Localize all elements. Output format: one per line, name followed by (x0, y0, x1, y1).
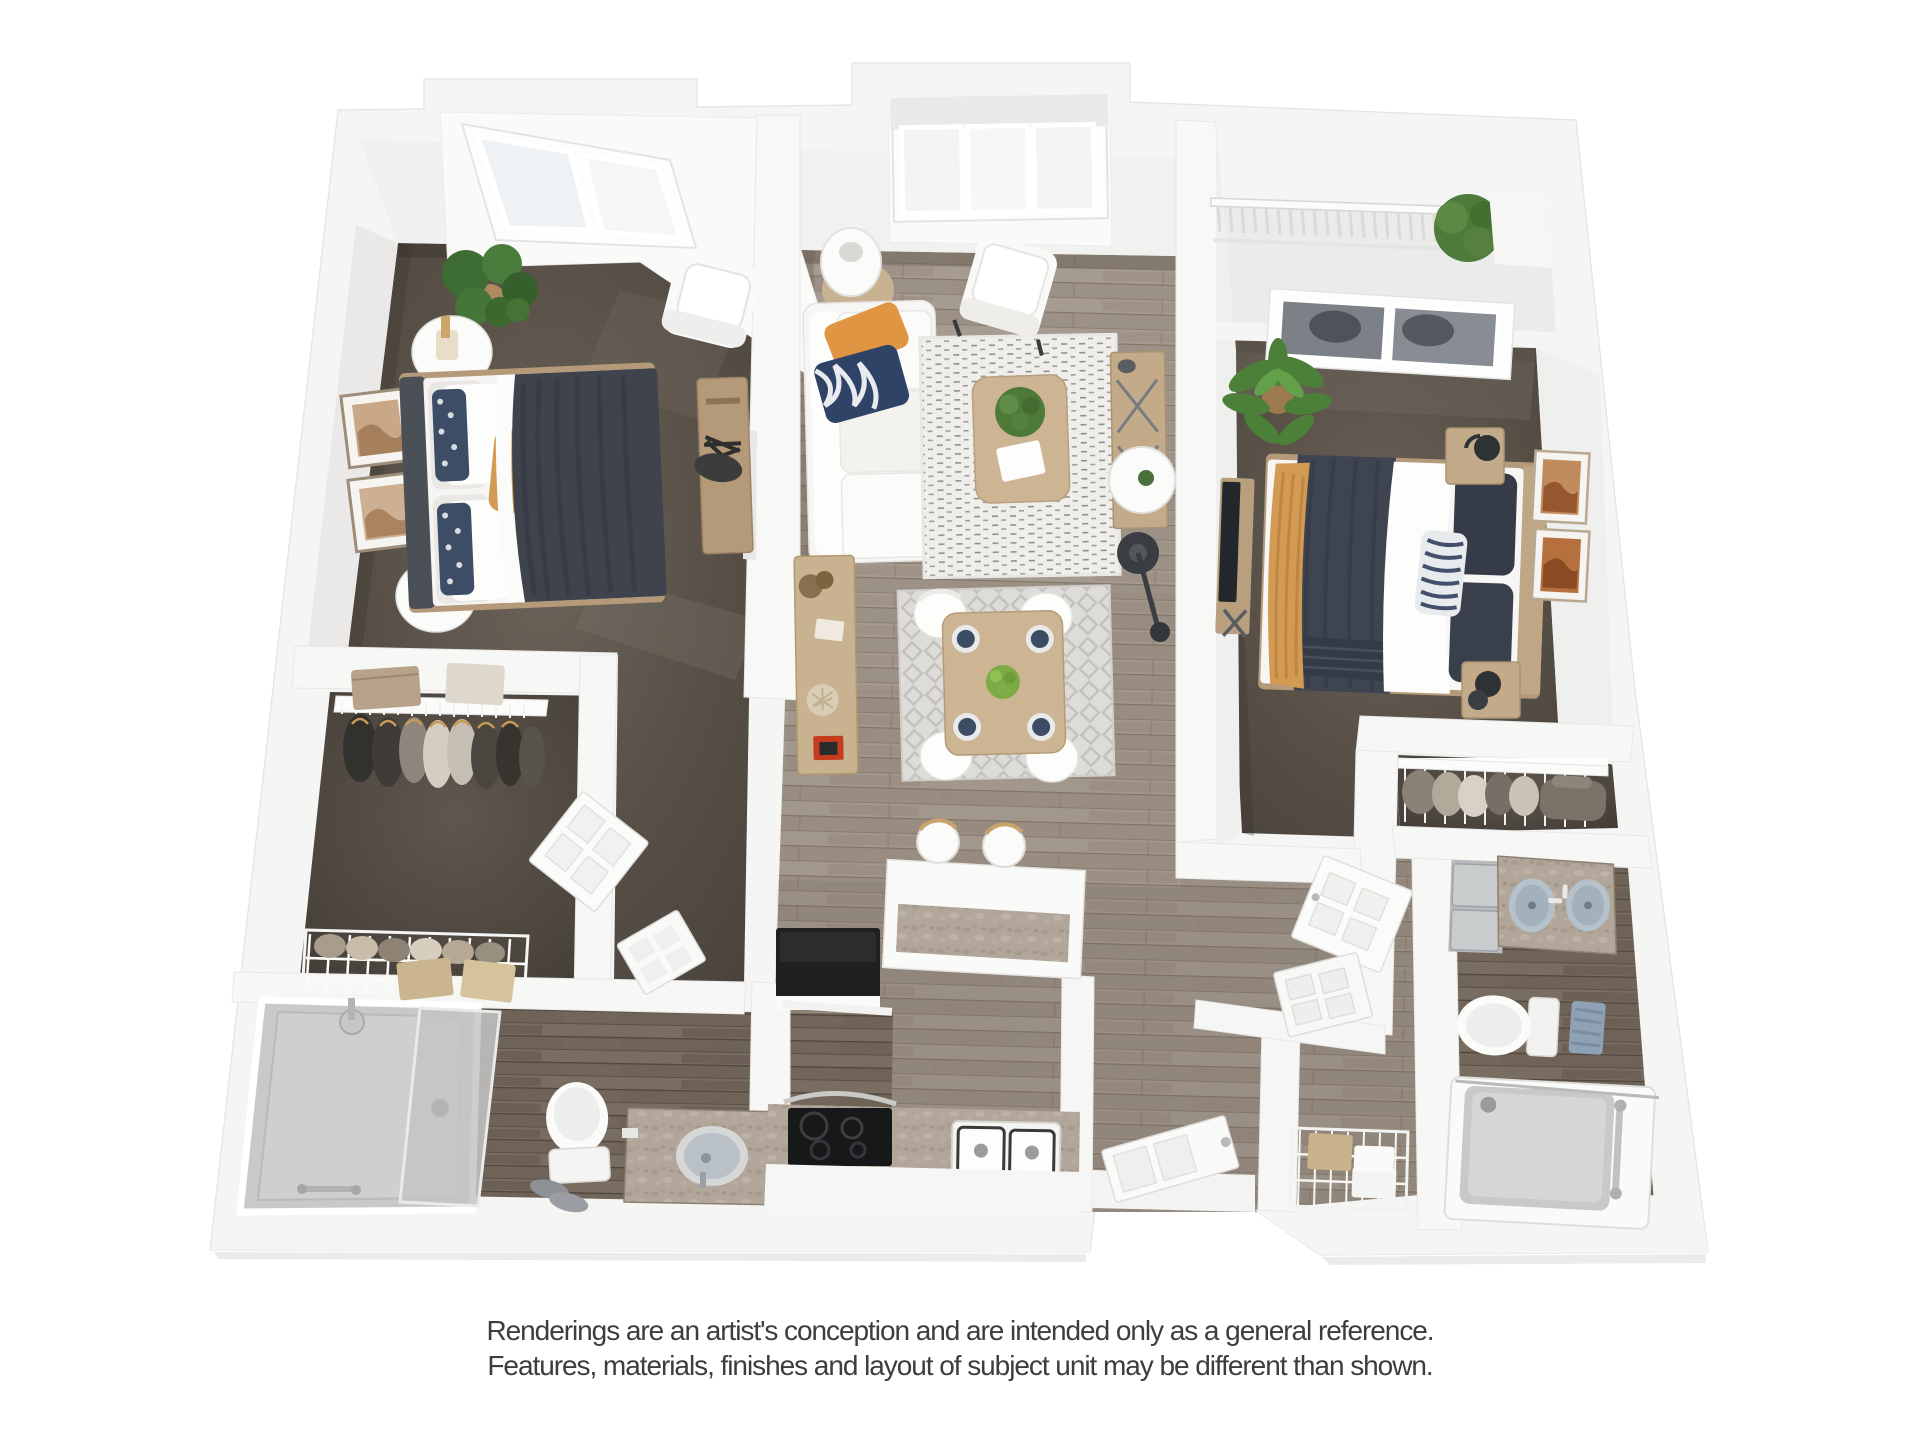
svg-text:Features, materials, finishes: Features, materials, finishes and layout… (487, 1350, 1432, 1381)
svg-text:Renderings are an artist's con: Renderings are an artist's conception an… (486, 1315, 1433, 1346)
